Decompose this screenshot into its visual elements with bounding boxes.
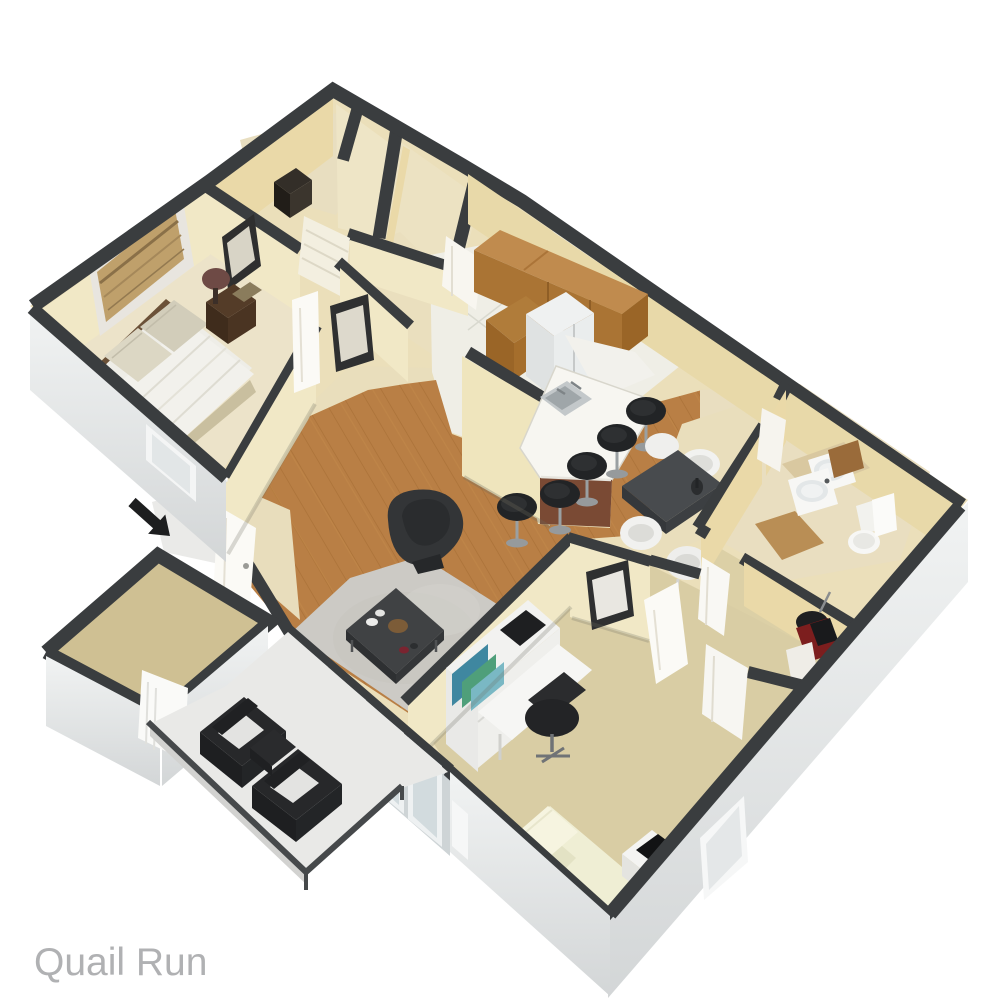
svg-text:Quail Run: Quail Run (34, 941, 207, 984)
